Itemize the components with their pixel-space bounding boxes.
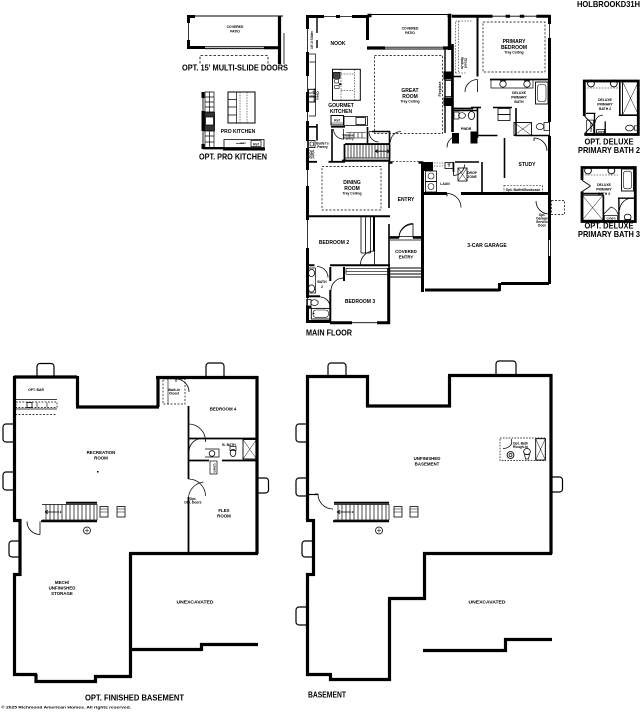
svg-text:PRIMARY BATH 3: PRIMARY BATH 3 (578, 229, 640, 239)
svg-text:ZONE: ZONE (467, 175, 477, 179)
svg-text:COVERED: COVERED (402, 27, 419, 31)
svg-text:MECH/: MECH/ (55, 580, 70, 585)
svg-text:BEDROOM 4: BEDROOM 4 (210, 407, 237, 412)
svg-text:Rough-In: Rough-In (513, 445, 528, 449)
svg-text:COVERED: COVERED (395, 249, 417, 254)
svg-text:DELUXE: DELUXE (512, 91, 526, 95)
svg-text:UNFINISHED: UNFINISHED (49, 586, 76, 591)
svg-text:OPT. PRO KITCHEN: OPT. PRO KITCHEN (199, 151, 267, 161)
svg-text:KITCHEN: KITCHEN (330, 109, 353, 115)
svg-text:PWDR: PWDR (461, 127, 472, 131)
svg-text:BEDROOM 3: BEDROOM 3 (345, 299, 376, 305)
svg-text:OPT. BAR: OPT. BAR (28, 388, 44, 392)
svg-text:STORAGE: STORAGE (51, 591, 73, 596)
svg-text:ENTRY: ENTRY (399, 255, 414, 260)
svg-text:UNFINISHED: UNFINISHED (414, 456, 441, 461)
svg-text:ROOM: ROOM (217, 514, 231, 519)
svg-text:OPT. FINISHED BASEMENT: OPT. FINISHED BASEMENT (85, 693, 184, 703)
svg-text:OPT. 15' MULTI-SLIDE DOORS: OPT. 15' MULTI-SLIDE DOORS (182, 62, 288, 72)
svg-text:NOOK: NOOK (331, 41, 346, 47)
svg-text:Oven: Oven (316, 91, 320, 99)
svg-text:BATH 3: BATH 3 (598, 192, 610, 196)
svg-text:PRIMARY: PRIMARY (597, 103, 613, 107)
svg-text:LAUN: LAUN (440, 182, 450, 186)
svg-text:RECREATION: RECREATION (87, 450, 116, 455)
svg-text:DELUXE: DELUXE (597, 183, 611, 187)
svg-text:UNEXCAVATED: UNEXCAVATED (177, 600, 214, 605)
svg-text:Pantry: Pantry (343, 137, 354, 141)
svg-text:UNEXCAVATED: UNEXCAVATED (469, 600, 506, 605)
svg-text:2: 2 (321, 285, 323, 289)
svg-text:B. BATH: B. BATH (222, 443, 236, 447)
svg-text:FLEX: FLEX (218, 508, 229, 513)
svg-text:PRIMARY: PRIMARY (596, 188, 612, 192)
svg-text:PRIMARY: PRIMARY (511, 96, 527, 100)
svg-text:HOLBROOKD31H: HOLBROOKD31H (577, 0, 640, 9)
svg-text:PATIO: PATIO (230, 30, 240, 34)
svg-text:3-CAR GARAGE: 3-CAR GARAGE (467, 243, 507, 249)
svg-text:Tray Ceiling: Tray Ceiling (504, 51, 523, 55)
svg-text:Ref: Ref (253, 143, 259, 147)
svg-text:Opt. Buffet/Bookcase: Opt. Buffet/Bookcase (506, 188, 541, 192)
svg-text:COVERED: COVERED (227, 25, 244, 29)
svg-text:Walk-In: Walk-In (460, 57, 464, 69)
svg-text:Tray Ceiling: Tray Ceiling (400, 100, 419, 104)
svg-text:Closet: Closet (464, 58, 468, 69)
svg-text:Door: Door (538, 224, 547, 228)
svg-text:BASEMENT: BASEMENT (308, 690, 346, 700)
svg-text:ENTRY: ENTRY (398, 197, 415, 203)
svg-text:Tray Ceiling: Tray Ceiling (342, 192, 361, 196)
svg-text:BASEMENT: BASEMENT (415, 462, 440, 467)
svg-text:ROOM: ROOM (94, 456, 108, 461)
svg-text:DELUXE: DELUXE (598, 98, 612, 102)
svg-text:Fireplace: Fireplace (438, 81, 442, 96)
svg-text:BEDROOM 2: BEDROOM 2 (319, 240, 350, 246)
svg-text:PATIO: PATIO (405, 31, 415, 35)
svg-text:Dbl. Doors: Dbl. Doors (184, 501, 201, 505)
svg-text:Ref: Ref (334, 119, 340, 123)
svg-text:Linen: Linen (589, 122, 593, 131)
svg-text:PRO KITCHEN: PRO KITCHEN (221, 129, 256, 135)
svg-text:Ref.: Ref. (308, 156, 314, 160)
svg-text:BATH 2: BATH 2 (599, 107, 611, 111)
svg-text:Linen: Linen (213, 463, 217, 472)
svg-text:BATH: BATH (317, 280, 327, 284)
svg-text:MAIN FLOOR: MAIN FLOOR (306, 327, 352, 337)
svg-text:PRIMARY BATH 2: PRIMARY BATH 2 (578, 145, 640, 155)
svg-text:Linen: Linen (596, 130, 605, 134)
svg-text:16'-0 Slider: 16'-0 Slider (310, 30, 314, 49)
svg-text:STUDY: STUDY (519, 162, 537, 168)
svg-text:BATH: BATH (514, 100, 524, 104)
svg-text:Pantry: Pantry (317, 145, 328, 149)
svg-text:© 2025 Richmond American Homes: © 2025 Richmond American Homes. All righ… (1, 706, 131, 710)
svg-text:Closet: Closet (169, 392, 180, 396)
